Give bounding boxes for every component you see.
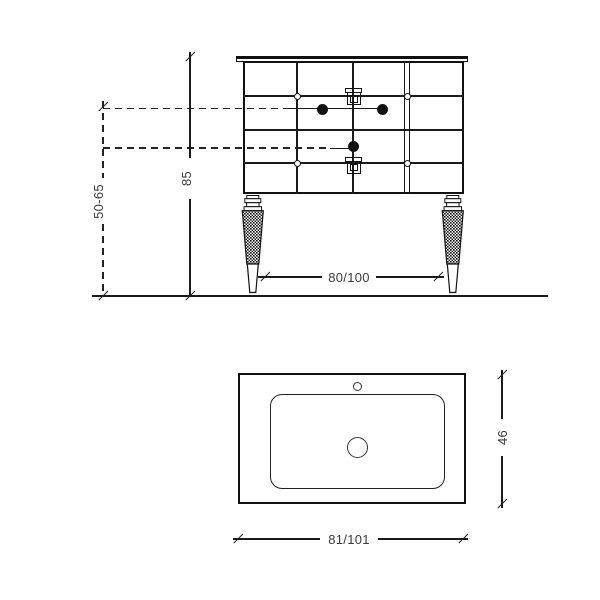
panel-joint-marker	[404, 93, 411, 100]
knob-top-inner	[350, 95, 358, 103]
leg-right	[438, 195, 468, 295]
leg-left	[238, 195, 268, 295]
drawer-divider-left	[296, 61, 298, 194]
dim-50-65-line-lower	[102, 224, 103, 296]
panel-joint-marker	[294, 160, 301, 167]
drawer-divider-right-a	[404, 61, 405, 194]
technical-drawing-canvas: 85 50-65 80/100	[0, 0, 600, 600]
dim-46-label: 46	[495, 429, 510, 444]
dim-50-65-line-upper	[102, 101, 103, 178]
panel-joint-marker	[294, 93, 301, 100]
knob-bottom-inner	[350, 164, 358, 171]
dim-80-100-label: 80/100	[322, 270, 376, 285]
dim-46-line-upper	[501, 370, 502, 419]
height-ref-line-lower	[103, 147, 330, 148]
dim-80-100-line-left	[258, 276, 322, 277]
dim-81-101-line-right	[378, 538, 468, 539]
floor-line	[92, 295, 548, 296]
connection-dot-right	[377, 104, 388, 115]
height-ref-line-upper-solid	[290, 108, 382, 109]
dim-85-label: 85	[179, 170, 194, 185]
drawer-divider-right-b	[409, 61, 410, 194]
faucet-hole	[353, 382, 362, 391]
height-ref-line-upper	[103, 108, 290, 109]
dim-50-65-label: 50-65	[91, 184, 106, 219]
dim-85-line-lower	[189, 199, 190, 296]
dim-80-100-line-right	[376, 276, 444, 277]
connection-dot-left	[317, 104, 328, 115]
drain-hole	[347, 437, 368, 458]
dim-81-101-label: 81/101	[320, 532, 378, 547]
panel-joint-marker	[404, 160, 411, 167]
drawer-divider-center	[352, 61, 354, 194]
dim-46-line-lower	[501, 456, 502, 508]
connection-dot-center	[348, 141, 359, 152]
dim-85-line-upper	[189, 52, 190, 158]
dim-81-101-line-left	[233, 538, 320, 539]
